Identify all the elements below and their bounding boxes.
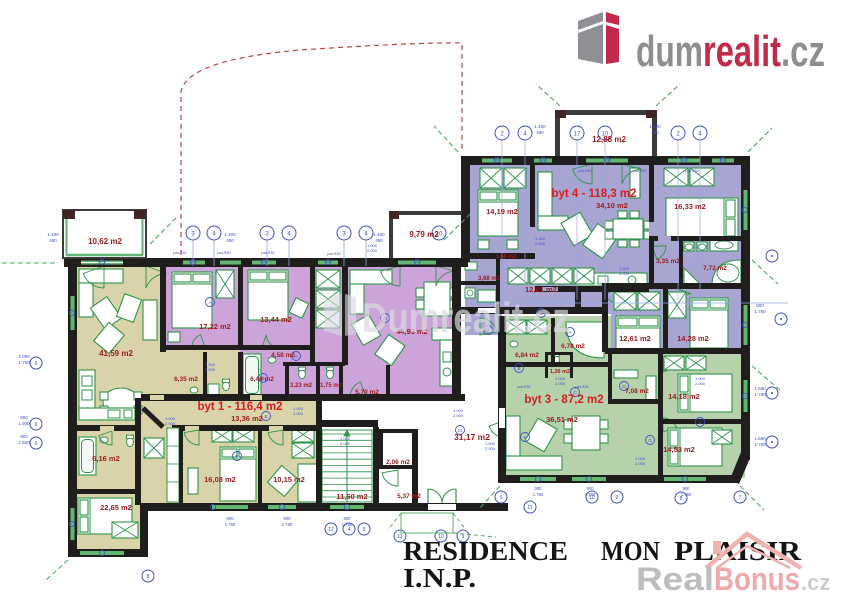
svg-text:par.930: par.930 (261, 250, 275, 255)
svg-text:B: B (517, 366, 520, 371)
svg-text:byt 4 - 118,3 m2: byt 4 - 118,3 m2 (551, 188, 636, 200)
svg-text:1.680: 1.680 (754, 436, 766, 441)
svg-text:2.000: 2.000 (367, 248, 378, 253)
svg-text:1.780: 1.780 (282, 522, 293, 527)
svg-text:1.780: 1.780 (585, 492, 596, 497)
svg-text:5,70 m2: 5,70 m2 (355, 389, 379, 396)
svg-text:9: 9 (616, 495, 619, 501)
svg-text:E: E (264, 414, 267, 419)
svg-text:5,37 m2: 5,37 m2 (397, 493, 421, 500)
svg-text:12,61 m2: 12,61 m2 (619, 334, 651, 343)
svg-text:par.930: par.930 (685, 168, 699, 173)
svg-text:1.780: 1.780 (533, 492, 544, 497)
svg-text:900: 900 (535, 486, 543, 491)
svg-text:par.930: par.930 (578, 168, 592, 173)
svg-text:2.000: 2.000 (165, 421, 176, 426)
svg-text:6,46 m2: 6,46 m2 (250, 376, 274, 383)
svg-text:Bonus: Bonus (714, 561, 800, 597)
svg-text:dum: dum (636, 27, 703, 76)
svg-text:Dumrealit.cz: Dumrealit.cz (362, 294, 570, 341)
svg-text:2.000: 2.000 (695, 381, 706, 386)
svg-text:17: 17 (574, 132, 581, 138)
svg-text:10,15 m2: 10,15 m2 (273, 475, 305, 484)
svg-text:A: A (208, 300, 211, 305)
svg-text:4: 4 (698, 132, 702, 138)
svg-text:4: 4 (364, 232, 368, 238)
svg-text:F: F (236, 454, 239, 459)
svg-text:par.930: par.930 (217, 250, 231, 255)
svg-text:1,26 m2: 1,26 m2 (550, 369, 570, 375)
svg-text:900: 900 (20, 415, 28, 420)
svg-text:1.780: 1.780 (342, 522, 353, 527)
svg-text:Real: Real (636, 561, 714, 597)
svg-text:G: G (648, 438, 652, 443)
svg-text:1.400: 1.400 (534, 124, 546, 129)
svg-text:7,08 m2: 7,08 m2 (625, 388, 649, 395)
svg-text:9: 9 (35, 441, 38, 447)
svg-text:1.400: 1.400 (649, 124, 661, 129)
svg-text:12,88 m2: 12,88 m2 (592, 135, 626, 144)
svg-text:9: 9 (35, 422, 38, 428)
svg-text:2,06 m2: 2,06 m2 (386, 459, 410, 466)
svg-text:14,19 m2: 14,19 m2 (486, 207, 518, 216)
svg-text:13,44 m2: 13,44 m2 (260, 315, 292, 324)
svg-text:36,51 m2: 36,51 m2 (546, 415, 578, 424)
svg-text:11: 11 (527, 505, 532, 511)
svg-text:byt 3 - 87,2 m2: byt 3 - 87,2 m2 (524, 394, 603, 406)
svg-text:1.400: 1.400 (373, 232, 385, 237)
svg-text:par.930: par.930 (517, 384, 531, 389)
svg-text:E: E (698, 420, 701, 425)
svg-text:14,18 m2: 14,18 m2 (668, 392, 700, 401)
svg-text:2.000: 2.000 (485, 446, 496, 451)
svg-text:9,79 m2: 9,79 m2 (409, 230, 439, 239)
svg-text:2.000: 2.000 (340, 441, 351, 446)
svg-text:4: 4 (348, 527, 351, 533)
svg-text:3: 3 (342, 232, 346, 238)
svg-text:13,36 m2: 13,36 m2 (231, 414, 263, 423)
svg-text:900: 900 (227, 516, 235, 521)
svg-text:3: 3 (191, 232, 195, 238)
svg-text:1.500: 1.500 (18, 421, 30, 426)
svg-text:900: 900 (284, 516, 292, 521)
svg-text:6,35 m2: 6,35 m2 (174, 376, 198, 383)
svg-text:par.930: par.930 (327, 251, 341, 256)
svg-text:3: 3 (265, 232, 269, 238)
svg-text:7: 7 (739, 495, 742, 501)
svg-text:14,28 m2: 14,28 m2 (677, 334, 709, 343)
svg-text:10,62 m2: 10,62 m2 (88, 237, 122, 246)
svg-text:.cz: .cz (801, 570, 830, 595)
svg-text:41,59 m2: 41,59 m2 (99, 349, 133, 358)
svg-text:par.930: par.930 (633, 168, 647, 173)
svg-text:480: 480 (651, 130, 659, 135)
svg-text:2: 2 (676, 132, 680, 138)
svg-text:3,68 m2: 3,68 m2 (478, 276, 501, 282)
svg-text:4: 4 (523, 132, 527, 138)
svg-text:480: 480 (226, 238, 234, 243)
svg-text:9: 9 (500, 495, 503, 501)
svg-text:2.000: 2.000 (453, 413, 464, 418)
svg-text:22,65 m2: 22,65 m2 (100, 503, 132, 512)
svg-text:1.780: 1.780 (681, 492, 692, 497)
svg-text:900: 900 (756, 303, 764, 308)
svg-text:16,08 m2: 16,08 m2 (204, 475, 236, 484)
svg-text:2.000: 2.000 (293, 411, 304, 416)
svg-text:1.400: 1.400 (47, 232, 59, 237)
svg-text:1.780: 1.780 (754, 309, 766, 314)
svg-text:2.000: 2.000 (619, 271, 630, 276)
svg-text:.cz: .cz (781, 27, 825, 76)
svg-text:4: 4 (287, 232, 291, 238)
svg-text:6,16 m2: 6,16 m2 (92, 454, 120, 463)
svg-text:6,78 m2: 6,78 m2 (561, 343, 585, 350)
svg-text:3,23 m2: 3,23 m2 (290, 383, 313, 389)
svg-text:16,33 m2: 16,33 m2 (674, 202, 706, 211)
svg-text:6,84 m2: 6,84 m2 (515, 352, 539, 359)
svg-text:900: 900 (587, 486, 595, 491)
svg-text:2.000: 2.000 (535, 241, 546, 246)
svg-text:realit: realit (703, 27, 781, 76)
svg-text:1.780: 1.780 (754, 442, 766, 447)
svg-text:11,60 m2: 11,60 m2 (336, 492, 367, 501)
svg-text:900: 900 (683, 486, 691, 491)
svg-text:7,72 m2: 7,72 m2 (703, 265, 727, 272)
svg-text:2.090: 2.090 (18, 354, 30, 359)
svg-text:K: K (523, 435, 526, 440)
svg-text:8: 8 (147, 574, 150, 580)
svg-text:2: 2 (500, 132, 504, 138)
svg-text:4,58 m2: 4,58 m2 (271, 352, 295, 359)
svg-text:1.780: 1.780 (754, 392, 766, 397)
svg-text:480: 480 (536, 130, 544, 135)
svg-text:11: 11 (397, 534, 402, 540)
svg-text:par.930: par.930 (575, 384, 589, 389)
svg-text:4: 4 (212, 232, 216, 238)
svg-text:900: 900 (344, 516, 352, 521)
svg-text:9: 9 (363, 527, 366, 533)
svg-text:12: 12 (328, 527, 334, 533)
svg-text:par.930: par.930 (173, 250, 187, 255)
svg-text:1.400: 1.400 (224, 232, 236, 237)
svg-text:1,75 m2: 1,75 m2 (320, 383, 343, 389)
svg-text:900: 900 (20, 434, 28, 439)
svg-text:1.680: 1.680 (754, 386, 766, 391)
svg-text:17,22 m2: 17,22 m2 (199, 322, 231, 331)
svg-text:1.780: 1.780 (225, 522, 236, 527)
svg-text:34,10 m2: 34,10 m2 (596, 201, 628, 210)
svg-text:6: 6 (35, 361, 38, 367)
svg-text:2.000: 2.000 (555, 381, 566, 386)
svg-text:1.750: 1.750 (18, 360, 30, 365)
svg-text:byt 1 - 116,4 m2: byt 1 - 116,4 m2 (197, 401, 282, 413)
svg-text:3,35 m2: 3,35 m2 (656, 258, 680, 265)
svg-text:31,17 m2: 31,17 m2 (454, 432, 490, 442)
svg-text:1,68 m2: 1,68 m2 (496, 254, 516, 260)
svg-text:12,01 m2: 12,01 m2 (525, 285, 557, 294)
svg-text:2.000: 2.000 (205, 367, 216, 372)
svg-text:I.N.P.: I.N.P. (403, 562, 476, 593)
svg-text:1.500: 1.500 (18, 440, 30, 445)
svg-text:14,53 m2: 14,53 m2 (663, 445, 695, 454)
svg-text:480: 480 (49, 238, 57, 243)
svg-text:2.000: 2.000 (635, 461, 646, 466)
